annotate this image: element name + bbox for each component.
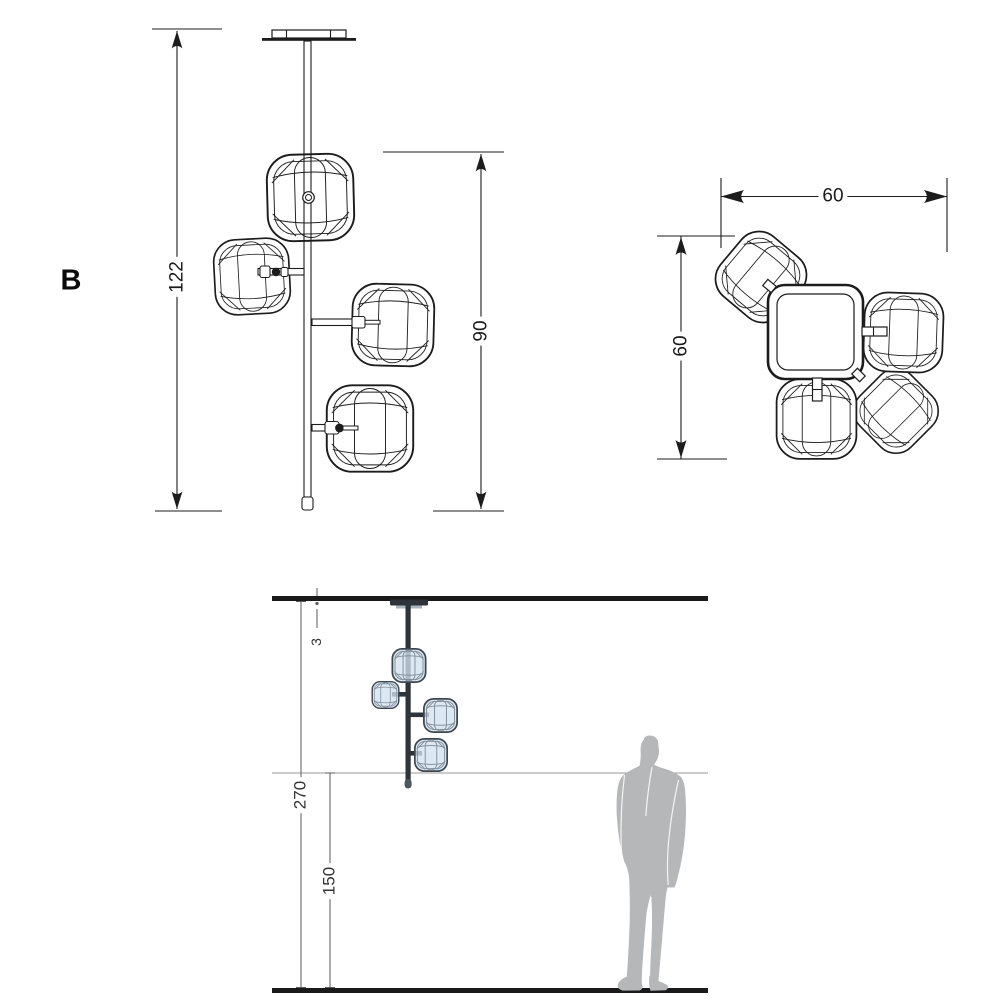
- install-dim-ceiling-height-label: 270: [292, 777, 309, 813]
- install-shade-right: [424, 699, 457, 732]
- arrow-up-icon: [476, 154, 487, 172]
- socket-right: [352, 317, 365, 329]
- front-dim-total-drop-label: 122: [168, 257, 187, 297]
- install-shade-left: [372, 682, 399, 709]
- arrow-down-icon: [172, 492, 183, 510]
- install-dim-canopy-offset: [315, 588, 318, 628]
- socket-left: [272, 268, 280, 276]
- top-canopy-plate: [768, 285, 863, 379]
- front-dim-shade-stack-label: 90: [472, 316, 491, 345]
- front-view: [152, 29, 504, 511]
- arrow-down-icon: [476, 492, 487, 510]
- install-dim-canopy-offset-label: 3: [309, 634, 323, 650]
- install-lamp: [372, 600, 457, 789]
- front-shades: [213, 153, 435, 472]
- drawing-canvas: [0, 0, 1000, 1000]
- install-shade-top: [392, 649, 425, 682]
- ceiling-line: [272, 596, 708, 601]
- floor-line: [272, 988, 708, 993]
- top-view: [657, 178, 947, 462]
- socket-top: [303, 192, 315, 204]
- arrow-up-icon: [172, 31, 183, 49]
- person-silhouette: [617, 735, 686, 990]
- variant-label: B: [61, 265, 82, 298]
- technical-drawing-page: B 122 90 60 60 3 270 150: [0, 0, 1000, 1000]
- arrow-down-icon: [676, 440, 687, 458]
- installation-view: [272, 588, 708, 993]
- arm-right: [312, 319, 354, 326]
- arrow-left-icon: [721, 190, 744, 203]
- install-shade-bottom: [415, 739, 447, 771]
- top-dim-depth-label: 60: [672, 331, 691, 360]
- install-dim-floor-clearance-label: 150: [321, 863, 338, 899]
- arrow-up-icon: [676, 237, 687, 255]
- arrow-right-icon: [924, 190, 947, 203]
- front-arms: [258, 192, 380, 434]
- front-canopy: [262, 30, 356, 41]
- front-shade-left: [213, 237, 292, 316]
- top-dim-width-label: 60: [818, 187, 847, 206]
- install-canopy: [390, 600, 428, 606]
